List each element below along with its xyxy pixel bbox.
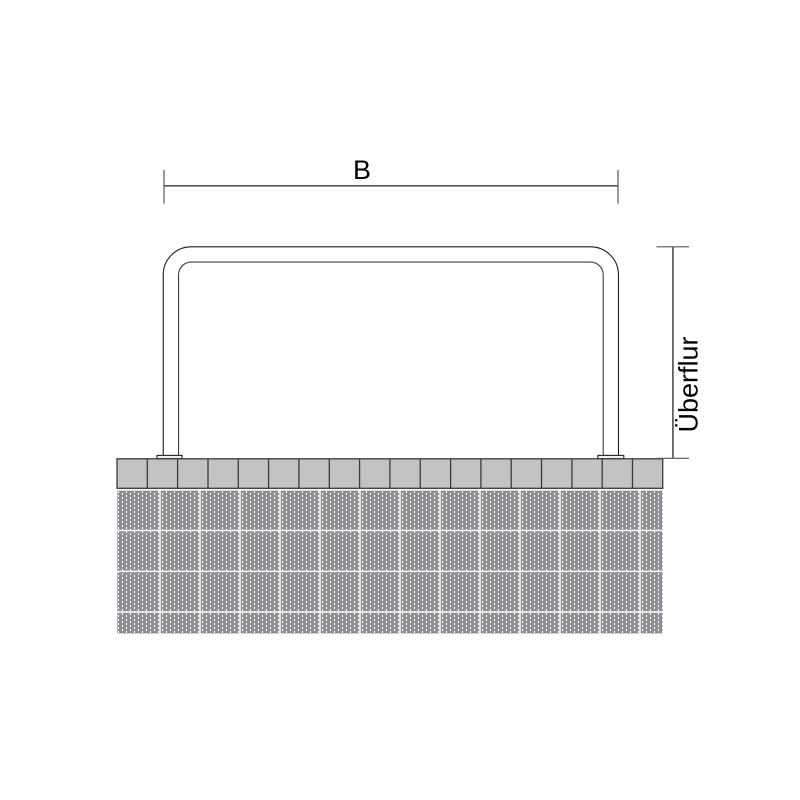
svg-text:B: B [353, 155, 371, 185]
svg-text:Überflur: Überflur [674, 336, 704, 432]
